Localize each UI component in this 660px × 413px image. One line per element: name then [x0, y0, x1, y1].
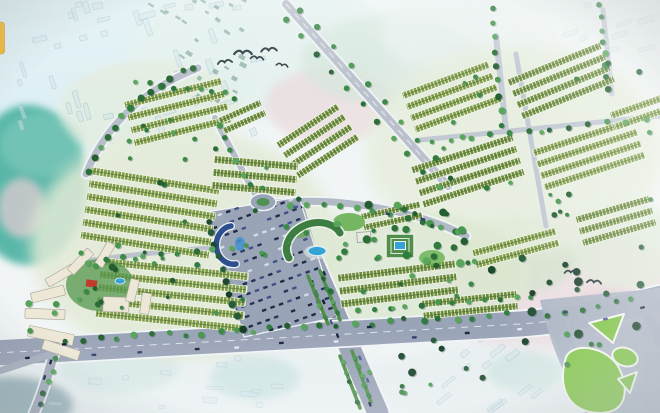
vignette — [0, 0, 660, 413]
masterplan-photo — [0, 0, 660, 413]
photo-haze-overlay — [0, 0, 660, 413]
masterplan-svg — [0, 0, 660, 413]
